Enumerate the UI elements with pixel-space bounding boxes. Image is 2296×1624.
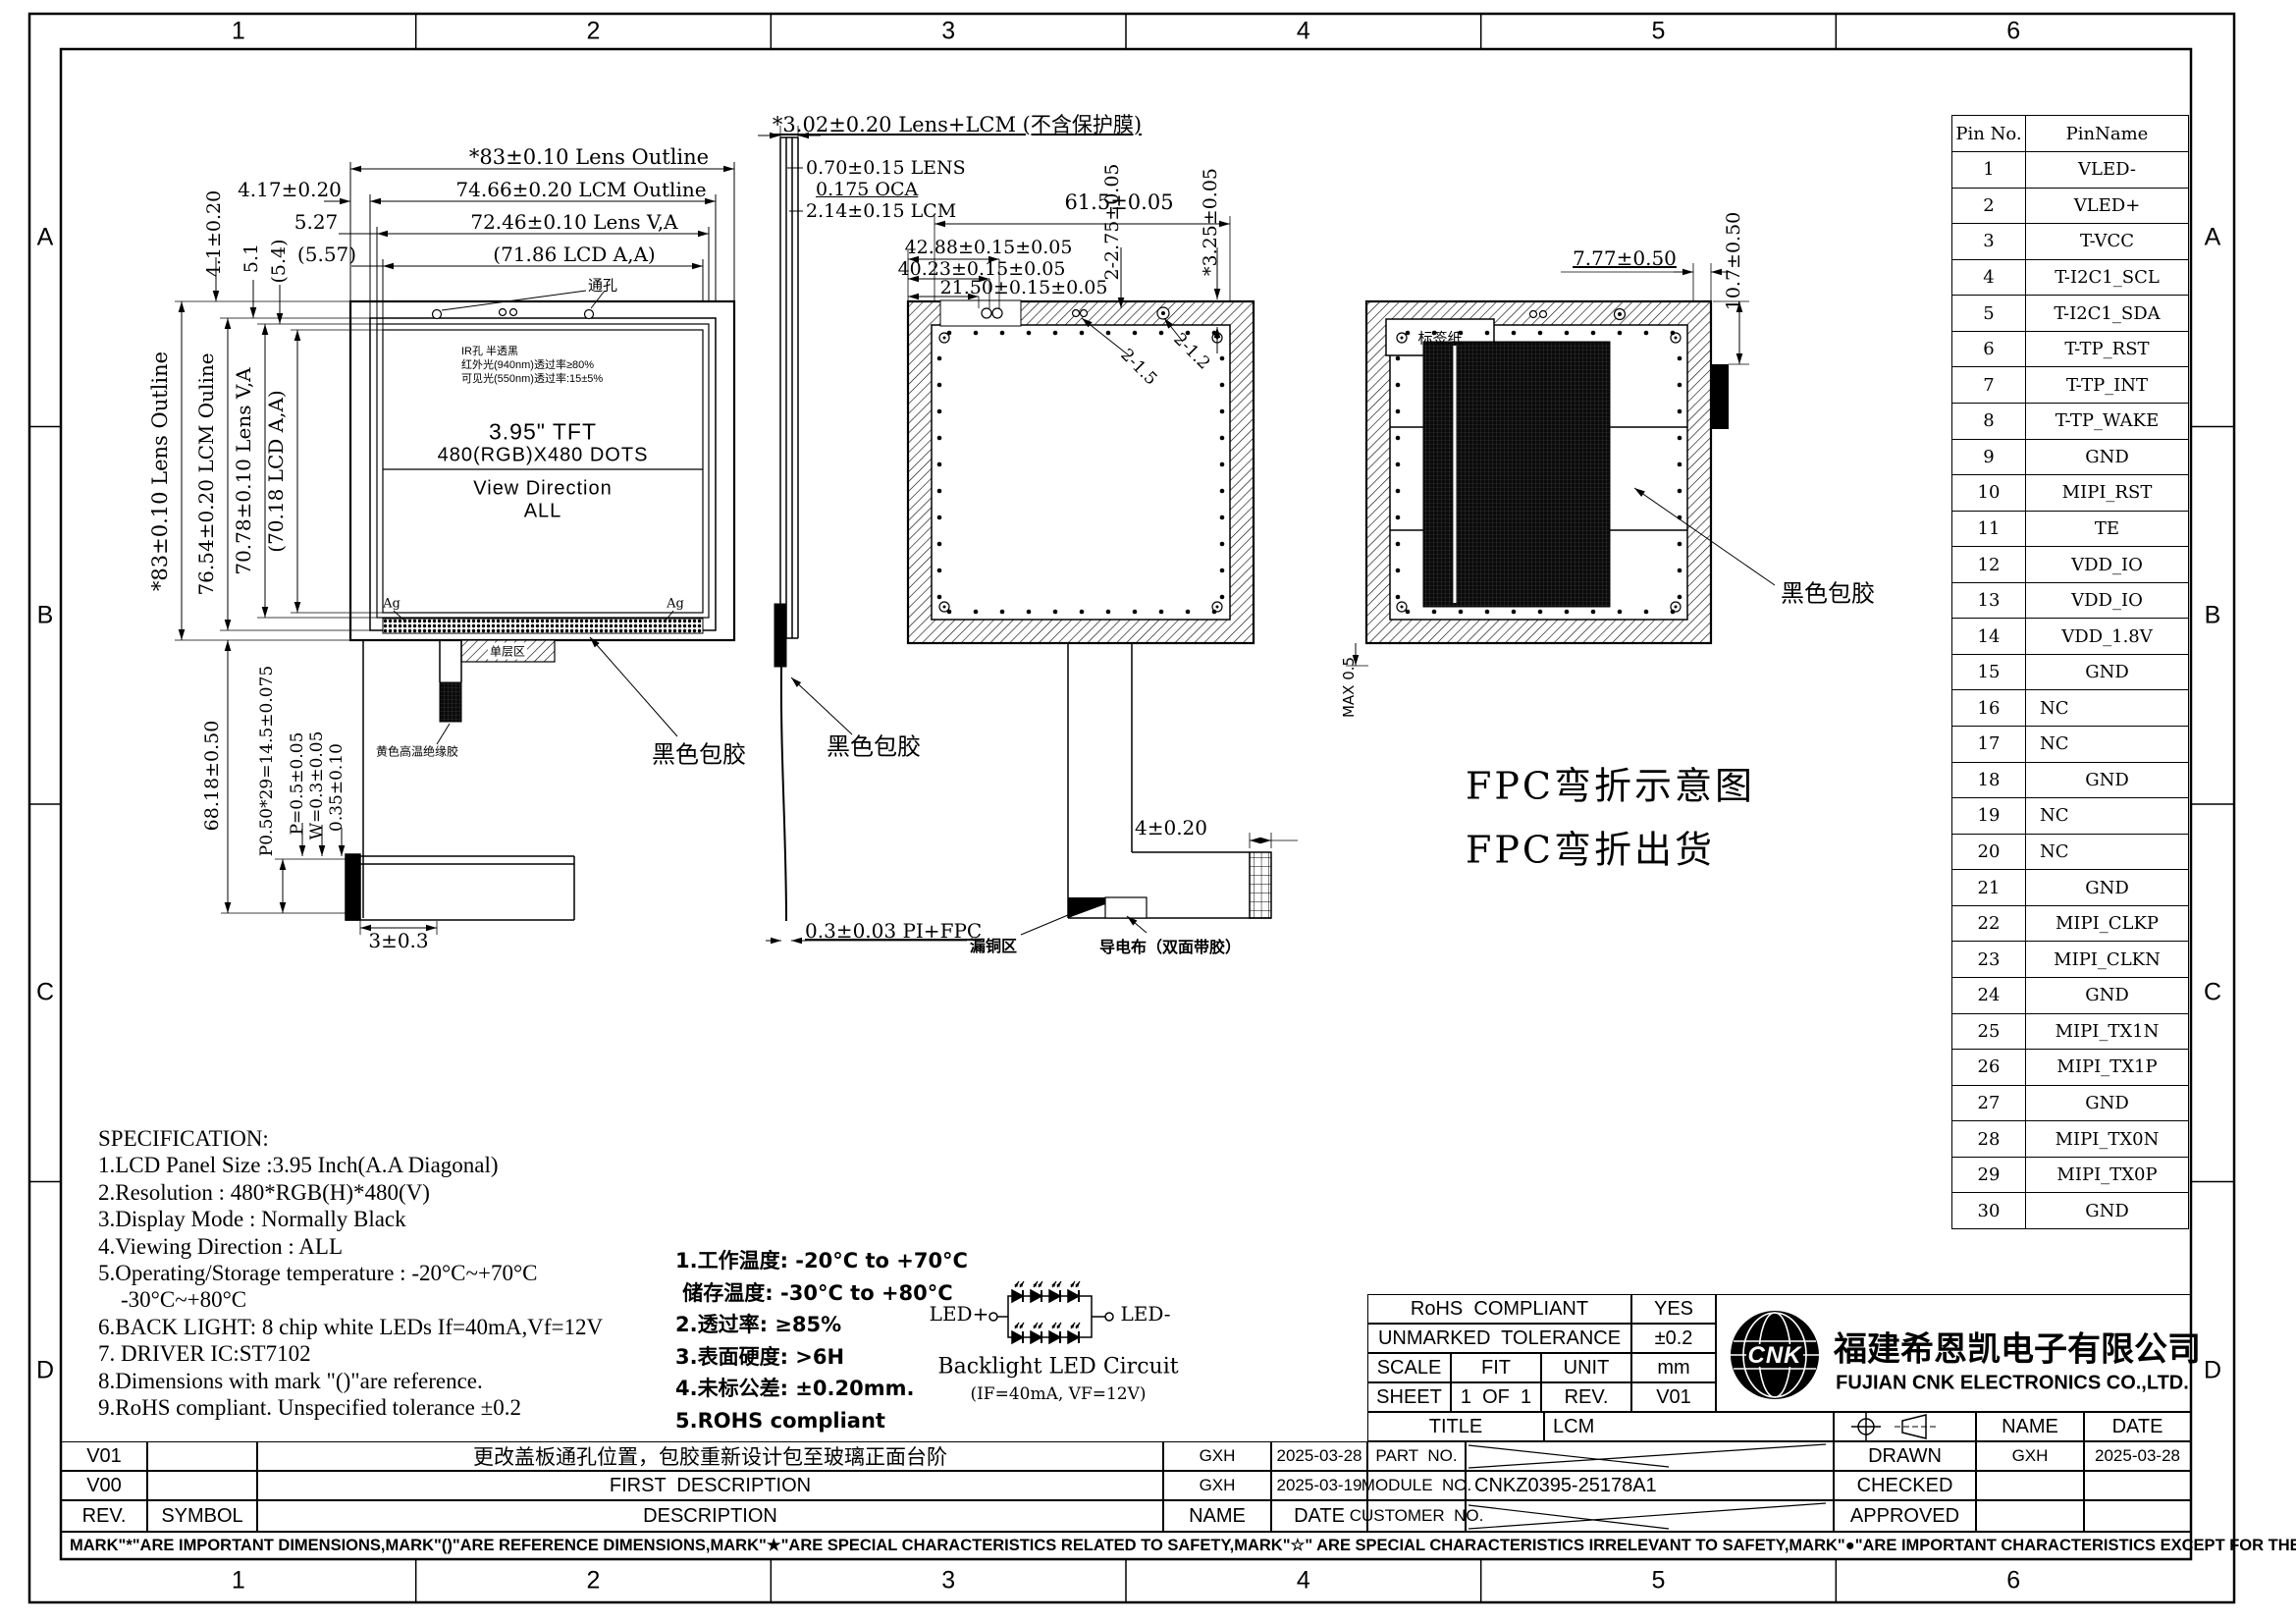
zone-label: 3 [941,18,955,46]
pin-name: T-TP_RST [2026,332,2188,367]
black-glue-label-1: 黑色包胶 [652,735,746,770]
pin-row: 21GND [1952,869,2188,905]
pin-no: 16 [1952,690,2026,726]
back-view [908,216,1298,935]
dim-4288: 42.88±0.15±0.05 [905,237,1073,258]
pin-row: 29MIPI_TX0P [1952,1157,2188,1193]
pin-no: 19 [1952,798,2026,834]
rev-value: V01 [1631,1382,1716,1412]
fpc-bend-note-2: FPC弯折出货 [1466,820,1715,874]
unit-value: mm [1631,1353,1716,1382]
note-line: 5.ROHS compliant [675,1405,968,1437]
zone-label: 1 [232,18,245,46]
part-no-label: PART NO. [1367,1441,1466,1471]
pin-row: 11TE [1952,511,2188,547]
drawn-name: GXH [1976,1441,2084,1471]
pin-name: NC [2026,798,2188,834]
note-line: 4.未标公差: ±0.20mm. [675,1373,968,1405]
checked-label: CHECKED [1834,1471,1976,1500]
rev-v01-name: GXH [1163,1441,1271,1471]
spec-line: 2.Resolution : 480*RGB(H)*480(V) [98,1179,603,1206]
pin-row: 24GND [1952,977,2188,1013]
pin-no: 14 [1952,619,2026,654]
pin-no: 28 [1952,1121,2026,1157]
pin-name: MIPI_CLKP [2026,906,2188,942]
dim-035: 0.35±0.10 [327,743,347,832]
spec-line: 7. DRIVER IC:ST7102 [98,1340,603,1367]
pin-row: 17NC [1952,726,2188,762]
dim-side-oca: 0.175 OCA [816,179,918,200]
pin-name: MIPI_TX0P [2026,1158,2188,1193]
company-logo-text: CNK [1748,1342,1802,1370]
engineering-drawing-sheet: *83±0.10 Lens Outline 4.17±0.20 74.66±0.… [0,0,2296,1624]
pin-name: GND [2026,440,2188,475]
dim-54: (5.4) [268,239,290,283]
module-no-value: CNKZ0395-25178A1 [1466,1471,1834,1500]
dim-51: 5.1 [240,244,262,273]
note-line: 储存温度: -30°C to +80°C [675,1277,968,1310]
pin-no: 6 [1952,332,2026,367]
checked-date [2084,1471,2191,1500]
zone-label: 5 [1652,18,1666,46]
pin-no: 13 [1952,583,2026,619]
pin-row: 4T-I2C1_SCL [1952,259,2188,296]
pin-name: TE [2026,512,2188,547]
pin-no: 5 [1952,296,2026,331]
pin-name: NC [2026,690,2188,726]
rev-label: REV. [1541,1382,1631,1412]
zone-label: D [2204,1356,2221,1384]
pin-no: 20 [1952,835,2026,870]
rev-v00-desc: FIRST DESCRIPTION [257,1471,1163,1500]
tolerance-value: ±0.2 [1631,1324,1716,1353]
pin-name: GND [2026,1193,2188,1228]
pin-name: T-TP_WAKE [2026,404,2188,439]
pin-row: 10MIPI_RST [1952,474,2188,511]
panel-size-text: 3.95" TFT [489,419,597,446]
spec-line: SPECIFICATION: [98,1125,603,1152]
drawn-date: 2025-03-28 [2084,1441,2191,1471]
pin-name: GND [2026,978,2188,1013]
zone-label: 4 [1297,1567,1310,1596]
dim-lens-outline-h: *83±0.10 Lens Outline [469,145,709,169]
spec-line: -30°C~+80°C [98,1286,603,1313]
pin-no: 15 [1952,655,2026,690]
pin-name: NC [2026,835,2188,870]
pin-row: 23MIPI_CLKN [1952,941,2188,977]
pin-name: T-I2C1_SDA [2026,296,2188,331]
pin-name: VDD_IO [2026,547,2188,582]
pin-name: VDD_1.8V [2026,619,2188,654]
panel-resolution-text: 480(RGB)X480 DOTS [438,445,649,467]
pin-row: 16NC [1952,689,2188,726]
view-direction-all: ALL [524,501,562,523]
pin-row: 28MIPI_TX0N [1952,1120,2188,1157]
pin-name: T-VCC [2026,224,2188,259]
pin-table-header: Pin No. PinName [1952,116,2188,151]
rohs-label: RoHS COMPLIANT [1367,1294,1631,1324]
zone-label: B [2205,601,2221,629]
pin-row: 12VDD_IO [1952,546,2188,582]
disclaimer-bar: MARK"*"ARE IMPORTANT DIMENSIONS,MARK"()"… [61,1532,2191,1559]
pin-no: 1 [1952,152,2026,188]
rev-v01-desc: 更改盖板通孔位置，包胶重新设计包至玻璃正面台阶 [257,1441,1163,1471]
pin-row: 6T-TP_RST [1952,331,2188,367]
dim-side-lens: 0.70±0.15 LENS [806,157,966,179]
pin-name: VLED+ [2026,189,2188,224]
pin-name: T-I2C1_SCL [2026,260,2188,296]
spec-line: 1.LCD Panel Size :3.95 Inch(A.A Diagonal… [98,1152,603,1178]
pin-row: 22MIPI_CLKP [1952,905,2188,942]
name-header: NAME [1976,1412,2084,1441]
conductive-cloth-label: 导电布（双面带胶） [1099,934,1241,957]
dim-p050: P0.50*29=14.5±0.075 [257,666,277,856]
pin-name: MIPI_TX1N [2026,1014,2188,1050]
pin-row: 14VDD_1.8V [1952,618,2188,654]
module-no-label: MODULE NO. [1367,1471,1466,1500]
dim-557: (5.57) [297,243,356,266]
customer-no-label: CUSTOMER NO. [1367,1500,1466,1532]
dim-527: 5.27 [294,210,339,234]
pin-row: 26MIPI_TX1P [1952,1049,2188,1085]
spec-line: 8.Dimensions with mark "()"are reference… [98,1368,603,1394]
bent-fpc-view [1346,263,1775,666]
dim-lens-va-v: 70.78±0.10 Lens V,A [232,367,255,574]
pin-no: 2 [1952,189,2026,224]
sheet-label: SHEET [1367,1382,1451,1412]
pin-no: 24 [1952,978,2026,1013]
pin-row: 9GND [1952,439,2188,475]
dim-w03: W=0.3±0.05 [307,731,327,840]
pin-no: 26 [1952,1050,2026,1085]
backlight-led-circuit [989,1281,1113,1343]
pin-name: GND [2026,763,2188,798]
rev-header-rev: REV. [61,1500,147,1532]
led-neg-label: LED- [1120,1302,1170,1326]
pin-name: GND [2026,870,2188,905]
dim-pi-fpc: 0.3±0.03 PI+FPC [805,919,982,943]
zone-label: 5 [1652,1567,1666,1596]
pin-row: 8T-TP_WAKE [1952,403,2188,439]
dim-777: 7.77±0.50 [1573,246,1677,270]
note-line: 1.工作温度: -20°C to +70°C [675,1245,968,1277]
pin-no: 3 [1952,224,2026,259]
note-line: 3.表面硬度: >6H [675,1341,968,1374]
spec-line: 9.RoHS compliant. Unspecified tolerance … [98,1394,603,1421]
zone-label: A [2205,224,2221,252]
scale-value: FIT [1451,1353,1541,1382]
pin-no: 11 [1952,512,2026,547]
pin-name: MIPI_RST [2026,475,2188,511]
dim-2150: 21.50±0.15±0.05 [940,277,1108,298]
ir-note-3: 可见光(550nm)透过率:15±5% [461,370,603,386]
pin-row: 1VLED- [1952,151,2188,188]
dim-2275: 2-2.75±0.05 [1101,163,1123,280]
pin-row: 15GND [1952,654,2188,690]
spec-line: 4.Viewing Direction : ALL [98,1233,603,1260]
pin-no: 30 [1952,1193,2026,1228]
dim-107: 10.7±0.50 [1723,212,1744,311]
unit-label: UNIT [1541,1353,1631,1382]
note-line: 2.透过率: ≥85% [675,1309,968,1341]
rev-header-symbol: SYMBOL [147,1500,257,1532]
checked-name [1976,1471,2084,1500]
pin-row: 30GND [1952,1192,2188,1228]
pin-no: 25 [1952,1014,2026,1050]
zone-label: C [36,979,54,1007]
pin-no: 29 [1952,1158,2026,1193]
rev-v00-date: 2025-03-19 [1271,1471,1367,1500]
spec-line: 6.BACK LIGHT: 8 chip white LEDs If=40mA,… [98,1314,603,1340]
pin-row: 25MIPI_TX1N [1952,1013,2188,1050]
pin-no: 12 [1952,547,2026,582]
pin-name: MIPI_CLKN [2026,942,2188,977]
ag-label-left: Ag [383,597,400,612]
pin-row: 13VDD_IO [1952,582,2188,619]
spec-line: 3.Display Mode : Normally Black [98,1206,603,1232]
pin-row: 18GND [1952,762,2188,798]
pin-name: VLED- [2026,152,2188,188]
pin-no: 10 [1952,475,2026,511]
spec-line: 5.Operating/Storage temperature : -20°C~… [98,1260,603,1286]
pin-row: 27GND [1952,1085,2188,1121]
drawn-label: DRAWN [1834,1441,1976,1471]
scale-label: SCALE [1367,1353,1451,1382]
projection-symbol-cell [1834,1412,1976,1441]
label-paper-text: 标签纸 [1417,328,1462,349]
rev-header-date: DATE [1271,1500,1367,1532]
pin-name: T-TP_INT [2026,367,2188,403]
zone-label: 2 [587,18,601,46]
pin-no: 7 [1952,367,2026,403]
pin-name-header: PinName [2026,116,2188,151]
pin-no: 4 [1952,260,2026,296]
dim-p05: P=0.5±0.05 [288,732,307,836]
zone-label: 1 [232,1567,245,1596]
dim-lcd-aa-v: (70.18 LCD A,A) [264,390,288,552]
zone-label: 6 [2006,1567,2020,1596]
pin-no-header: Pin No. [1952,116,2026,151]
led-circuit-rating: (IF=40mA, VF=12V) [970,1384,1146,1404]
pin-no: 22 [1952,906,2026,942]
zone-label: C [2204,979,2221,1007]
pin-name: MIPI_TX1P [2026,1050,2188,1085]
dim-lcd-aa-h: (71.86 LCD A,A) [493,243,655,266]
pin-no: 18 [1952,763,2026,798]
chinese-notes-block: 1.工作温度: -20°C to +70°C 储存温度: -30°C to +8… [675,1245,968,1437]
pin-row: 19NC [1952,797,2188,834]
pin-no: 9 [1952,440,2026,475]
zone-label: 4 [1297,18,1310,46]
rev-header-desc: DESCRIPTION [257,1500,1163,1532]
rev-row-v00: V00 [61,1471,147,1500]
through-hole-label: 通孔 [588,275,617,296]
black-glue-label-2: 黑色包胶 [827,728,921,762]
view-direction-text: View Direction [473,478,612,501]
dim-41: 4.1±0.20 [203,190,225,277]
dim-lcm-outline-h: 74.66±0.20 LCM Outline [455,178,706,201]
front-view-fpc-tail [346,637,677,920]
customer-no-value [1466,1500,1834,1532]
pin-table: Pin No. PinName 1VLED-2VLED+3T-VCC4T-I2C… [1951,115,2189,1229]
zone-label: D [36,1356,54,1384]
part-no-value [1466,1441,1834,1471]
copper-area-label: 漏铜区 [970,933,1017,956]
zone-label: 3 [941,1567,955,1596]
dim-lcm-outline-v: 76.54±0.20 LCM Ouline [194,352,218,595]
pin-name: VDD_IO [2026,583,2188,619]
dim-side-lcm: 2.14±0.15 LCM [806,200,956,222]
pin-row: 2VLED+ [1952,188,2188,224]
rev-v01-date: 2025-03-28 [1271,1441,1367,1471]
fpc-bend-note-1: FPC弯折示意图 [1466,756,1755,810]
rev-row-v01: V01 [61,1441,147,1471]
black-glue-label-3: 黑色包胶 [1781,574,1875,609]
pin-row: 5T-I2C1_SDA [1952,295,2188,331]
dim-4-020: 4±0.20 [1135,816,1207,839]
title-value: LCM [1544,1412,1834,1441]
zone-label: 2 [587,1567,601,1596]
rev-header-name: NAME [1163,1500,1271,1532]
pin-row: 3T-VCC [1952,223,2188,259]
dim-max-05: MAX 0.5 [1340,657,1358,718]
dim-side-total: *3.02±0.20 Lens+LCM (不含保护膜) [773,109,1142,138]
pin-no: 27 [1952,1086,2026,1121]
rev-v00-name: GXH [1163,1471,1271,1500]
sheet-value: 1 OF 1 [1451,1382,1541,1412]
pin-no: 17 [1952,727,2026,762]
tolerance-label: UNMARKED TOLERANCE [1367,1324,1631,1353]
pin-no: 21 [1952,870,2026,905]
rev-v00-symbol [147,1471,257,1500]
rohs-value: YES [1631,1294,1716,1324]
single-layer-label: 单层区 [488,643,527,660]
zone-label: B [37,601,54,629]
pin-name: GND [2026,1086,2188,1121]
zone-label: 6 [2006,18,2020,46]
zone-label: A [37,224,54,252]
dim-6818: 68.18±0.50 [201,721,223,832]
approved-date [2084,1500,2191,1532]
ag-label-right: Ag [667,597,684,612]
pin-name: NC [2026,727,2188,762]
pin-name: MIPI_TX0N [2026,1121,2188,1157]
pin-row: 7T-TP_INT [1952,366,2188,403]
yellow-tape-label: 黄色高温绝缘胶 [376,743,458,760]
title-label: TITLE [1367,1412,1544,1441]
pin-name: GND [2026,655,2188,690]
dim-lens-outline-v: *83±0.10 Lens Outline [148,352,172,591]
dim-417: 4.17±0.20 [238,178,342,201]
pin-no: 8 [1952,404,2026,439]
date-header: DATE [2084,1412,2191,1441]
pin-row: 20NC [1952,834,2188,870]
led-circuit-caption: Backlight LED Circuit [937,1355,1178,1380]
dim-325: *3.25±0.05 [1200,168,1221,276]
approved-name [1976,1500,2084,1532]
pin-no: 23 [1952,942,2026,977]
specification-block: SPECIFICATION:1.LCD Panel Size :3.95 Inc… [98,1125,603,1421]
dim-303: 3±0.3 [368,929,428,952]
approved-label: APPROVED [1834,1500,1976,1532]
dim-lens-va-h: 72.46±0.10 Lens V,A [470,210,677,234]
rev-v01-symbol [147,1441,257,1471]
